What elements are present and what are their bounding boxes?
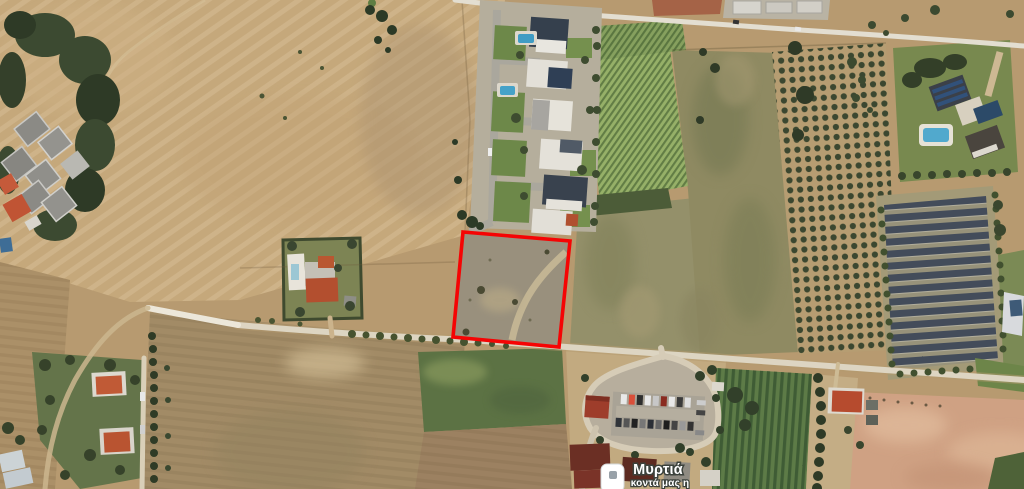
parked-car [140,425,145,434]
parked-car [140,392,145,401]
car-on-road [795,27,801,32]
poi-subtitle[interactable]: κοντά μας η [631,478,690,489]
satellite-map-canvas[interactable]: Μυρτιά κοντά μας η [0,0,1024,489]
orange-roof-villa [96,375,123,394]
poi-marker-dot [609,471,617,479]
swimming-pool [518,34,534,43]
car-on-road [733,20,739,25]
orange-roof-villa [103,431,130,452]
poi-title[interactable]: Μυρτιά [633,462,683,478]
parcel-area [453,232,570,347]
orange-roof-house [306,277,339,302]
swimming-pool [923,128,949,142]
poi-label-group[interactable]: Μυρτιά κοντά μας η [601,462,689,489]
orange-roof-farmhouse [832,390,863,412]
parked-car [488,148,492,156]
villa-compound [470,0,602,235]
swimming-pool [500,86,515,95]
blue-roof-structure [0,237,13,253]
satellite-imagery: Μυρτιά κοντά μας η [0,0,1024,489]
